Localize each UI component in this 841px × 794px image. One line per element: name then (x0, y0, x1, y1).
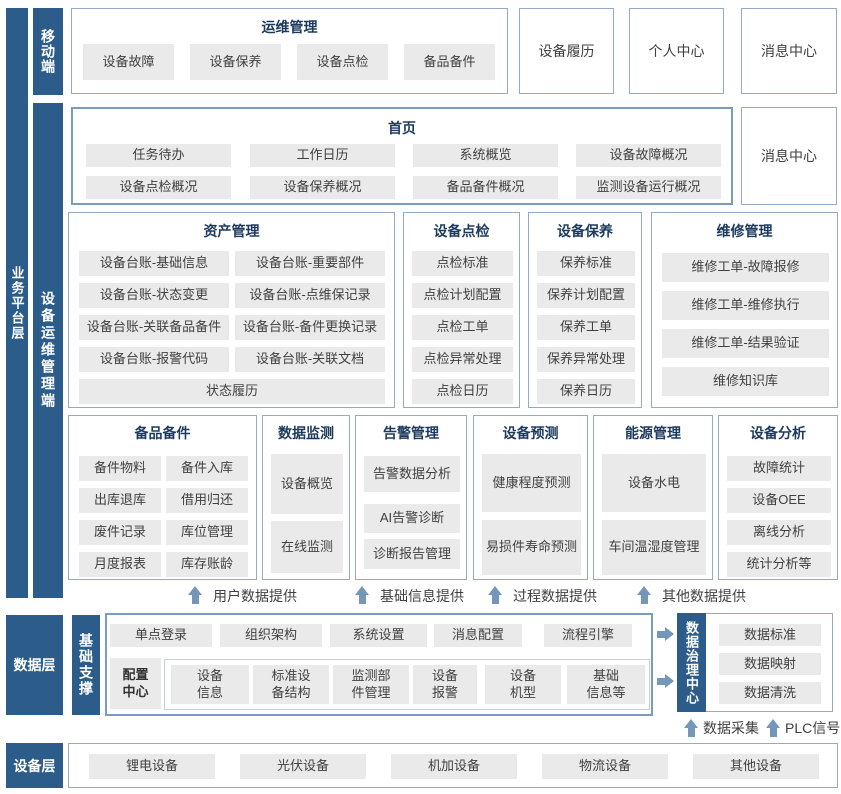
box-spare: 备品备件 备件物料 备件入库 出库退库 借用归还 废件记录 库位管理 月度报表 … (68, 415, 257, 580)
monitor-item: 在线监测 (271, 521, 343, 573)
asset-title: 资产管理 (69, 221, 394, 241)
monitor-item: 设备概览 (271, 454, 343, 514)
home-item: 监测设备运行概况 (576, 176, 721, 199)
box-alarm: 告警管理 告警数据分析 AI告警诊断 诊断报告管理 (355, 415, 467, 580)
alarm-item: 诊断报告管理 (364, 539, 460, 569)
repair-item: 维修工单-维修执行 (662, 291, 829, 320)
support-item: 单点登录 (110, 624, 212, 647)
ops-mobile-title: 运维管理 (72, 17, 507, 37)
support-item: 组织架构 (220, 624, 322, 647)
repair-item: 维修工单-故障报修 (662, 253, 829, 282)
box-repair: 维修管理 维修工单-故障报修 维修工单-维修执行 维修工单-结果验证 维修知识库 (651, 212, 838, 408)
layer-bar-mobile: 移动端 (33, 8, 63, 95)
box-message-center-mobile: 消息中心 (741, 8, 837, 94)
config-item: 设备 信息 (171, 665, 249, 704)
home-item: 设备保养概况 (250, 176, 395, 199)
asset-item: 设备台账-报警代码 (79, 347, 229, 372)
right-arrow-icon (657, 627, 674, 642)
alarm-title: 告警管理 (356, 423, 466, 443)
layer-bar-device: 设备层 (6, 743, 63, 788)
up-arrow-icon (637, 586, 652, 604)
inspection-item: 点检日历 (412, 379, 513, 404)
layer-bar-ops-mgmt: 设备运维管理端 (33, 103, 63, 598)
up-arrow-icon (684, 719, 699, 737)
feed-arrow-label: 用户数据提供 (213, 587, 297, 605)
home-item: 任务待办 (86, 144, 231, 167)
box-device-history: 设备履历 (519, 8, 614, 94)
feed-arrow-label: 基础信息提供 (380, 587, 464, 605)
spare-item: 库位管理 (166, 520, 248, 545)
predict-item: 易损件寿命预测 (482, 520, 581, 575)
support-item: 流程引擎 (544, 624, 632, 647)
home-item: 系统概览 (413, 144, 558, 167)
spare-item: 废件记录 (79, 520, 161, 545)
box-energy: 能源管理 设备水电 车间温湿度管理 (593, 415, 713, 580)
maintenance-item: 保养工单 (537, 315, 635, 340)
spare-item: 月度报表 (79, 552, 161, 577)
repair-item: 维修工单-结果验证 (662, 329, 829, 358)
inspection-item: 点检工单 (412, 315, 513, 340)
device-item: 锂电设备 (89, 754, 215, 779)
home-item: 备品备件概况 (413, 176, 558, 199)
personal-center-label: 个人中心 (630, 9, 723, 93)
mobile-item: 设备保养 (190, 44, 281, 80)
support-item: 消息配置 (434, 624, 522, 647)
box-monitor: 数据监测 设备概览 在线监测 (262, 415, 350, 580)
plc-arrow-label: PLC信号 (785, 719, 840, 737)
config-item: 监测部 件管理 (333, 665, 409, 704)
asset-item: 设备台账-基础信息 (79, 251, 229, 276)
config-item: 设备 机型 (485, 665, 561, 704)
inspection-title: 设备点检 (404, 221, 519, 241)
spare-item: 备件物料 (79, 456, 161, 481)
box-base-support: 单点登录 组织架构 系统设置 消息配置 流程引擎 配置 中心 设备 信息 标准设… (105, 613, 653, 716)
collect-arrow-label: 数据采集 (703, 719, 759, 737)
device-item: 光伏设备 (240, 754, 366, 779)
box-predict: 设备预测 健康程度预测 易损件寿命预测 (473, 415, 588, 580)
config-center-frame: 设备 信息 标准设 备结构 监测部 件管理 设备 报警 设备 机型 基础 信息等 (164, 659, 650, 710)
predict-item: 健康程度预测 (482, 454, 581, 512)
maintenance-title: 设备保养 (529, 221, 641, 241)
home-title: 首页 (73, 118, 731, 138)
asset-item: 设备台账-状态变更 (79, 283, 229, 308)
asset-item: 设备台账-重要部件 (235, 251, 385, 276)
mobile-item: 设备点检 (297, 44, 388, 80)
up-arrow-icon (488, 586, 503, 604)
layer-bar-base-support: 基础支撑 (72, 615, 100, 715)
box-inspection: 设备点检 点检标准 点检计划配置 点检工单 点检异常处理 点检日历 (403, 212, 520, 408)
box-maintenance: 设备保养 保养标准 保养计划配置 保养工单 保养异常处理 保养日历 (528, 212, 642, 408)
home-item: 设备点检概况 (86, 176, 231, 199)
box-ops-mgmt-mobile: 运维管理 设备故障 设备保养 设备点检 备品备件 (71, 8, 508, 94)
spare-item: 备件入库 (166, 456, 248, 481)
asset-item-wide: 状态履历 (79, 379, 385, 404)
support-item: 系统设置 (330, 624, 427, 647)
mobile-item: 备品备件 (404, 44, 495, 80)
home-item: 设备故障概况 (576, 144, 721, 167)
box-personal-center: 个人中心 (629, 8, 724, 94)
config-center-label: 配置 中心 (110, 658, 161, 709)
box-data-governance: 数据治理中心 数据标准 数据映射 数据清洗 (677, 613, 833, 712)
maintenance-item: 保养日历 (537, 379, 635, 404)
layer-bar-data: 数据层 (6, 615, 63, 715)
device-history-label: 设备履历 (520, 9, 613, 93)
box-device-layer: 锂电设备 光伏设备 机加设备 物流设备 其他设备 (68, 743, 838, 788)
feed-arrow-label: 其他数据提供 (662, 587, 746, 605)
up-arrow-icon (766, 719, 781, 737)
energy-title: 能源管理 (594, 423, 712, 443)
inspection-item: 点检异常处理 (412, 347, 513, 372)
box-asset: 资产管理 设备台账-基础信息 设备台账-重要部件 设备台账-状态变更 设备台账-… (68, 212, 395, 408)
message-center-mobile-label: 消息中心 (742, 9, 836, 93)
maintenance-item: 保养标准 (537, 251, 635, 276)
maintenance-item: 保养计划配置 (537, 283, 635, 308)
config-item: 设备 报警 (413, 665, 477, 704)
repair-item: 维修知识库 (662, 367, 829, 396)
governance-bar: 数据治理中心 (677, 613, 706, 712)
feed-arrow-label: 过程数据提供 (513, 587, 597, 605)
device-item: 其他设备 (693, 754, 819, 779)
analysis-item: 设备OEE (727, 488, 831, 513)
asset-item: 设备台账-点维保记录 (235, 283, 385, 308)
alarm-item: 告警数据分析 (364, 456, 460, 492)
up-arrow-icon (355, 586, 370, 604)
asset-item: 设备台账-关联文档 (235, 347, 385, 372)
spare-item: 库存账龄 (166, 552, 248, 577)
box-home: 首页 任务待办 工作日历 系统概览 设备故障概况 设备点检概况 设备保养概况 备… (71, 107, 733, 205)
governance-item: 数据映射 (719, 653, 821, 675)
analysis-item: 故障统计 (727, 456, 831, 481)
up-arrow-icon (188, 586, 203, 604)
monitor-title: 数据监测 (263, 423, 349, 443)
message-center-home-label: 消息中心 (742, 108, 836, 204)
governance-item: 数据清洗 (719, 682, 821, 704)
home-item: 工作日历 (250, 144, 395, 167)
spare-item: 出库退库 (79, 488, 161, 513)
analysis-item: 统计分析等 (727, 552, 831, 577)
maintenance-item: 保养异常处理 (537, 347, 635, 372)
config-item: 基础 信息等 (567, 665, 645, 704)
right-arrow-icon (657, 674, 674, 689)
architecture-diagram: 业务平台层 移动端 设备运维管理端 数据层 基础支撑 设备层 运维管理 设备故障… (0, 0, 841, 794)
mobile-item: 设备故障 (83, 44, 174, 80)
spare-title: 备品备件 (69, 423, 256, 443)
box-analysis: 设备分析 故障统计 设备OEE 离线分析 统计分析等 (718, 415, 838, 580)
box-message-center-home: 消息中心 (741, 107, 837, 205)
repair-title: 维修管理 (652, 221, 837, 241)
config-item: 标准设 备结构 (253, 665, 329, 704)
analysis-title: 设备分析 (719, 423, 837, 443)
asset-item: 设备台账-备件更换记录 (235, 315, 385, 340)
inspection-item: 点检标准 (412, 251, 513, 276)
analysis-item: 离线分析 (727, 520, 831, 545)
inspection-item: 点检计划配置 (412, 283, 513, 308)
alarm-item: AI告警诊断 (364, 504, 460, 533)
spare-item: 借用归还 (166, 488, 248, 513)
governance-item: 数据标准 (719, 624, 821, 646)
energy-item: 设备水电 (602, 454, 706, 512)
layer-bar-business-platform: 业务平台层 (6, 8, 28, 598)
device-item: 机加设备 (391, 754, 517, 779)
asset-item: 设备台账-关联备品备件 (79, 315, 229, 340)
energy-item: 车间温湿度管理 (602, 520, 706, 575)
predict-title: 设备预测 (474, 423, 587, 443)
device-item: 物流设备 (542, 754, 668, 779)
